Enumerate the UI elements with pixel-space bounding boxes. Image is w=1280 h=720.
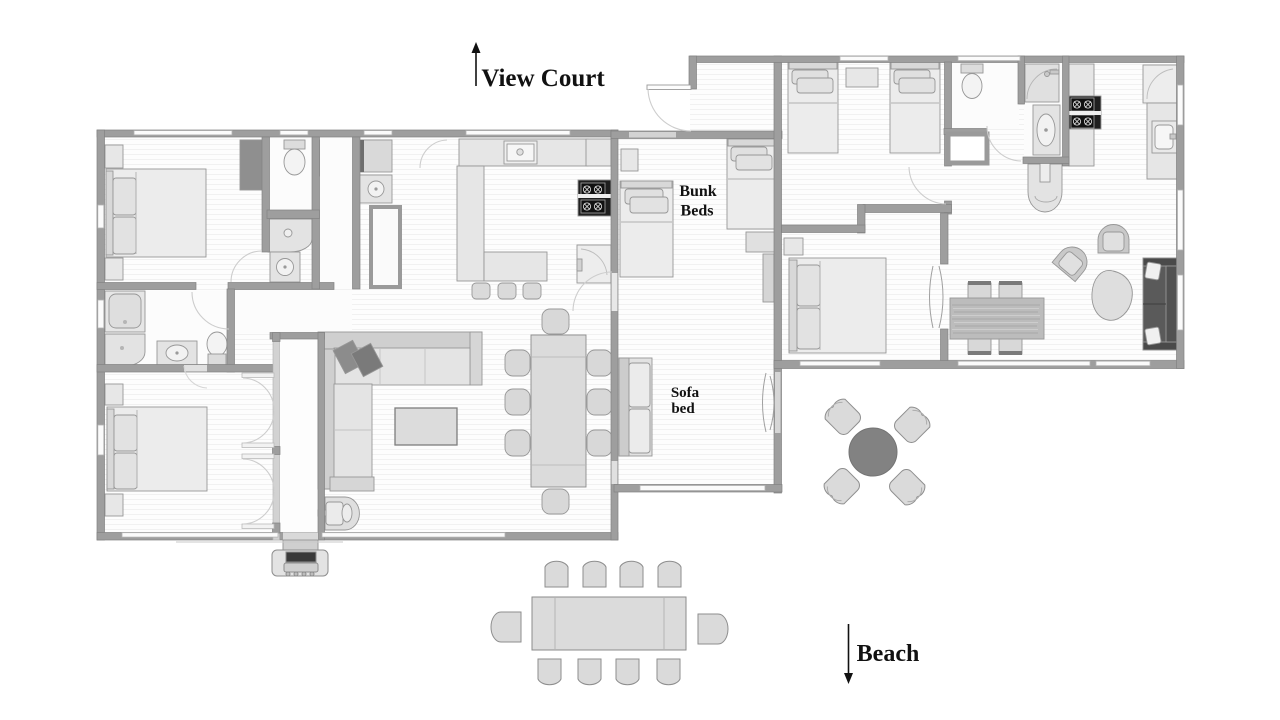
- svg-text:Beds: Beds: [681, 203, 714, 220]
- svg-text:Beach: Beach: [857, 641, 920, 667]
- svg-text:Sofa: Sofa: [671, 385, 700, 401]
- svg-text:bed: bed: [671, 401, 695, 417]
- svg-text:Bunk: Bunk: [679, 183, 716, 200]
- svg-text:View Court: View Court: [481, 65, 605, 92]
